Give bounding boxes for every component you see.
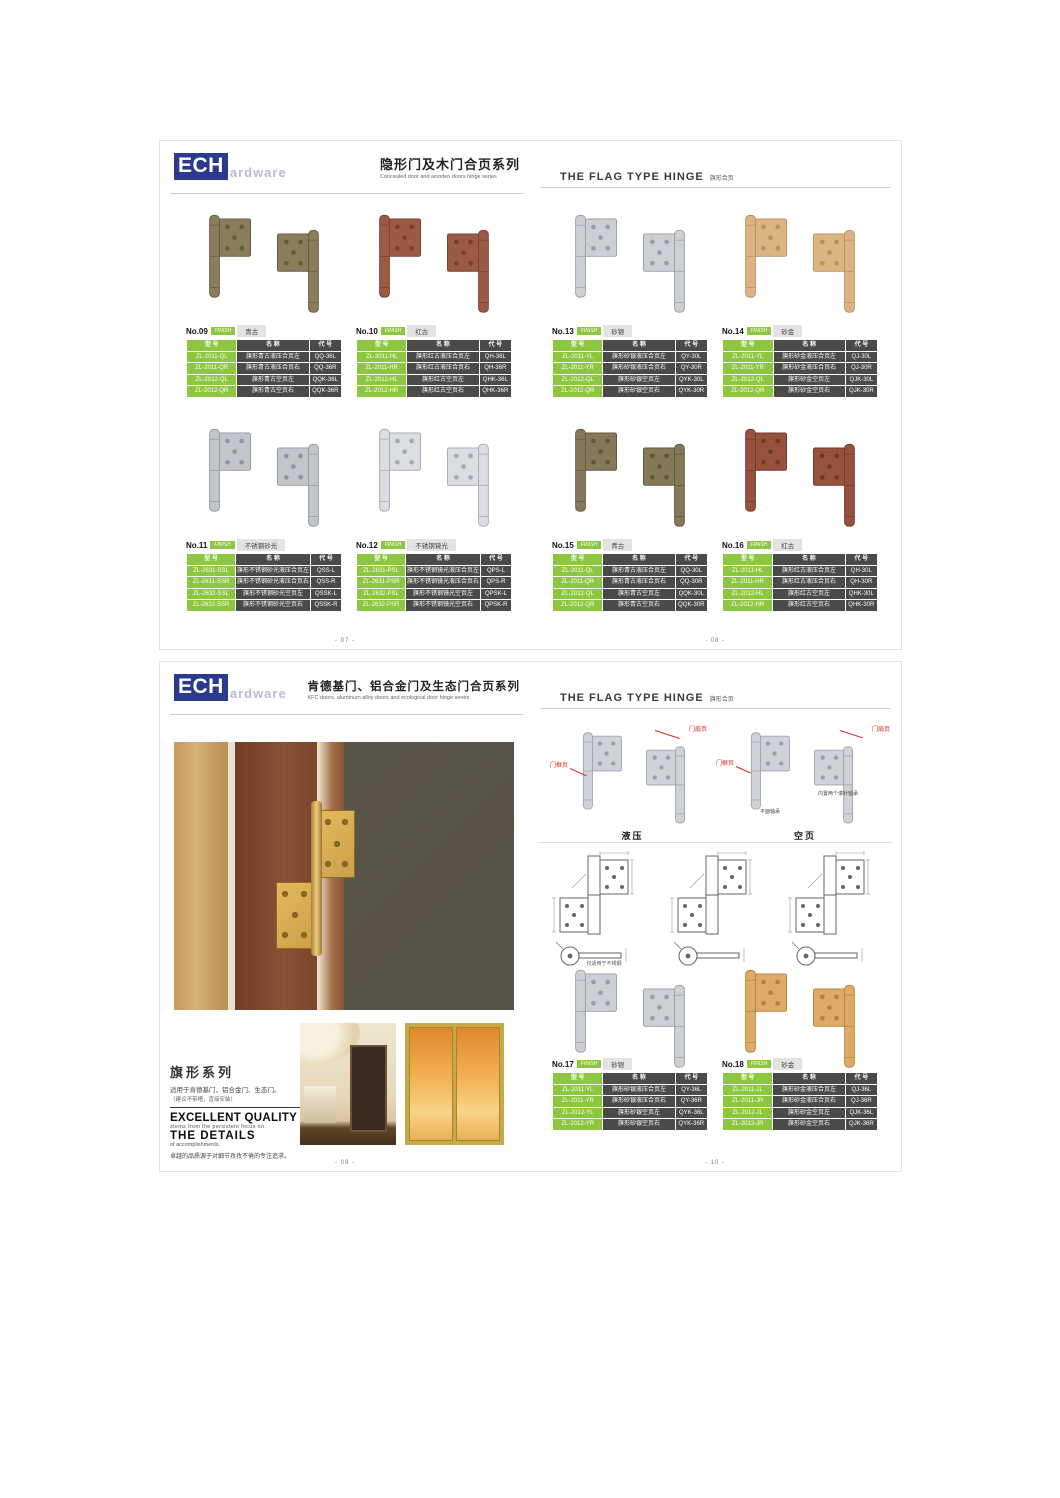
product-number: No.18 (722, 1060, 744, 1069)
code-cell: QQK-36L (310, 375, 341, 386)
spec-row: ZL-2011-HR旗形红古液压合页右QH-36R (357, 363, 511, 374)
model-cell: ZL-2012-JL (723, 1108, 772, 1119)
photo-door-edge (235, 742, 317, 1010)
hydraulic-caption: 液压 (550, 829, 715, 842)
hollow-hinge-image (746, 732, 858, 833)
header-divider (540, 708, 890, 709)
spec-row: ZL-2011-YL旗形砂银液压合页左QY-30L (553, 352, 707, 363)
spec-col-header: 名 称 (603, 1073, 674, 1084)
spec-col-header: 代 号 (846, 554, 877, 565)
spec-row: ZL-2011-HR旗形红古液压合页右QH-30R (723, 577, 877, 588)
spec-col-header: 名 称 (406, 554, 480, 565)
hinge-structure-diagrams: 门扇页 门框页 液压 门扇页 门框页 平面轴承 内置两个滚针轴承 (536, 724, 894, 842)
code-cell: QYK-30L (676, 375, 707, 386)
spec-row: ZL-2632-SSL旗形不锈钢砂光空页左QSSK-L (187, 589, 341, 600)
spec-row: ZL-2012-HL旗形红古空页左QHK-30L (723, 589, 877, 600)
name-cell: 旗形砂金液压合页左 (773, 1085, 844, 1096)
details-subtitle: of accomplishments. (170, 1142, 308, 1148)
spec-col-header: 名 称 (603, 340, 674, 351)
model-cell: ZL-2012-YL (553, 1108, 602, 1119)
page-title-en: Concealed door and wooden doors hinge se… (380, 174, 520, 180)
product-number: No.09 (186, 327, 208, 336)
spec-col-header: 名 称 (237, 340, 308, 351)
spec-table-header-row: 型 号名 称代 号 (553, 1073, 707, 1084)
page-09: ECH ardware 肯德基门、铝合金门及生态门合页系列 KFC doors,… (160, 662, 530, 1171)
spec-col-header: 代 号 (846, 340, 877, 351)
header-divider (170, 714, 524, 715)
spec-col-header: 型 号 (723, 1073, 772, 1084)
hinge-product-photo (356, 421, 512, 539)
product-row: No.17 FINISH 砂银 型 号名 称代 号 ZL-2011-YL旗形砂银… (552, 984, 878, 1131)
finish-badge: FINISH (747, 541, 771, 549)
spec-row: ZL-2011-HL旗形红古液压合页左QH-36L (357, 352, 511, 363)
spec-row: ZL-2011-QR旗形青古液压合页右QQ-30R (553, 577, 707, 588)
code-cell: QHK-36R (480, 386, 511, 397)
spec-table: 型 号名 称代 号 ZL-2631-PSL旗形不锈钢镜光液压合页左QPS-LZL… (356, 553, 512, 612)
photo-wood-strip (174, 742, 228, 1010)
model-cell: ZL-2011-JL (723, 1085, 772, 1096)
name-cell: 旗形青古液压合页左 (237, 352, 308, 363)
name-cell: 旗形红古空页右 (407, 386, 478, 397)
page-07: ECH ardware 隐形门及木门合页系列 Concealed door an… (160, 141, 530, 649)
model-cell: ZL-2012-QL (553, 589, 602, 600)
spec-col-header: 名 称 (603, 554, 674, 565)
technical-drawing (778, 850, 882, 981)
spec-row: ZL-2012-QR旗形砂银空页右QYK-30R (553, 386, 707, 397)
hinge-product-photo (722, 421, 878, 539)
spec-col-header: 名 称 (407, 340, 478, 351)
finish-badge: FINISH (577, 541, 601, 549)
product-row: No.13 FINISH 砂银 型 号名 称代 号 ZL-2011-YL旗形砂银… (552, 207, 878, 398)
name-cell: 旗形不锈钢砂光液压合页左 (236, 566, 310, 577)
spec-table: 型 号名 称代 号 ZL-2011-QL旗形青古液压合页左QQ-36LZL-20… (186, 339, 342, 398)
product-number: No.10 (356, 327, 378, 336)
name-cell: 旗形砂金空页左 (773, 1108, 844, 1119)
name-cell: 旗形砂金空页右 (774, 386, 845, 397)
door-leaf-label: 门扇页 (689, 724, 707, 733)
model-cell: ZL-2011-YR (553, 1096, 602, 1107)
spec-table: 型 号名 称代 号 ZL-2631-SSL旗形不锈钢砂光液压合页左QSS-LZL… (186, 553, 342, 612)
code-cell: QY-36L (676, 1085, 707, 1096)
spec-col-header: 代 号 (846, 1073, 877, 1084)
model-cell: ZL-2012-HR (357, 386, 406, 397)
product-label: No.13 FINISH 砂银 (552, 325, 708, 337)
finish-name: 砂银 (603, 325, 632, 337)
model-cell: ZL-2012-HL (357, 375, 406, 386)
name-cell: 旗形青古空页右 (237, 386, 308, 397)
spec-row: ZL-2012-QL旗形青古空页左QQK-30L (553, 589, 707, 600)
product-row: No.15 FINISH 青古 型 号名 称代 号 ZL-2011-QL旗形青古… (552, 421, 878, 612)
series-title: 旗形系列 (170, 1062, 308, 1081)
code-cell: QSSK-L (311, 589, 341, 600)
spec-row: ZL-2012-HR旗形红古空页右QHK-30R (723, 600, 877, 611)
finish-badge: FINISH (211, 327, 235, 335)
name-cell: 旗形红古空页左 (773, 589, 844, 600)
model-cell: ZL-2012-QL (187, 375, 236, 386)
name-cell: 旗形红古液压合页右 (407, 363, 478, 374)
spec-col-header: 代 号 (311, 554, 341, 565)
spec-row: ZL-2011-YR旗形砂金液压合页右QJ-30R (723, 363, 877, 374)
product-number: No.17 (552, 1060, 574, 1069)
product-card: No.17 FINISH 砂银 型 号名 称代 号 ZL-2011-YL旗形砂银… (552, 984, 708, 1131)
spec-table-header-row: 型 号名 称代 号 (723, 1073, 877, 1084)
code-cell: QH-30R (846, 577, 877, 588)
page-10: THE FLAG TYPE HINGE 旗形合页 门扇页 门框页 液压 (530, 662, 900, 1171)
name-cell: 旗形红古空页右 (773, 600, 844, 611)
spec-col-header: 代 号 (481, 554, 511, 565)
product-card: No.09 FINISH 青古 型 号名 称代 号 ZL-2011-QL旗形青古… (186, 207, 342, 398)
spec-row: ZL-2011-YL旗形砂银液压合页左QY-36L (553, 1085, 707, 1096)
spec-table-header-row: 型 号名 称代 号 (357, 340, 511, 351)
product-number: No.15 (552, 541, 574, 550)
drawing-note: 仅适用于不锈钢 (552, 960, 656, 967)
plane-bearing-label: 平面轴承 (760, 808, 780, 815)
flag-hinge-title: THE FLAG TYPE HINGE (560, 171, 704, 183)
finish-name: 砂金 (773, 325, 802, 337)
name-cell: 旗形砂金空页左 (774, 375, 845, 386)
model-cell: ZL-2011-QR (187, 363, 236, 374)
code-cell: QSS-L (311, 566, 341, 577)
code-cell: QH-36L (480, 352, 511, 363)
spec-col-header: 代 号 (676, 554, 707, 565)
header-divider (170, 193, 524, 194)
hinge-product-photo (722, 984, 878, 1058)
code-cell: QH-36R (480, 363, 511, 374)
hinge-product-photo (186, 207, 342, 325)
product-card: No.15 FINISH 青古 型 号名 称代 号 ZL-2011-QL旗形青古… (552, 421, 708, 612)
spec-row: ZL-2632-PSL旗形不锈钢镜光空页左QPSK-L (357, 589, 511, 600)
finish-badge: FINISH (747, 1060, 771, 1068)
flag-hinge-title: THE FLAG TYPE HINGE (560, 692, 704, 704)
code-cell: QQ-30L (676, 566, 707, 577)
spec-row: ZL-2011-YL旗形砂金液压合页左QJ-30L (723, 352, 877, 363)
name-cell: 旗形砂金液压合页右 (774, 363, 845, 374)
product-label: No.14 FINISH 砂金 (722, 325, 878, 337)
spec-row: ZL-2012-QR旗形砂金空页右QJK-30R (723, 386, 877, 397)
name-cell: 旗形青古液压合页右 (603, 577, 674, 588)
product-number: No.16 (722, 541, 744, 550)
model-cell: ZL-2011-HR (357, 363, 406, 374)
details-title: THE DETAILS (170, 1130, 308, 1142)
spec-col-header: 名 称 (773, 1073, 844, 1084)
door-leaf-label: 门扇页 (872, 724, 890, 733)
name-cell: 旗形砂银空页左 (603, 375, 674, 386)
product-label: No.15 FINISH 青古 (552, 539, 708, 551)
quality-title: EXCELLENT QUALITY (170, 1112, 308, 1124)
model-cell: ZL-2012-JR (723, 1119, 772, 1130)
dark-door (350, 1045, 387, 1132)
model-cell: ZL-2631-SSL (187, 566, 235, 577)
flag-hinge-title-cn: 旗形合页 (710, 173, 734, 182)
model-cell: ZL-2011-YR (553, 363, 602, 374)
code-cell: QY-36R (676, 1096, 707, 1107)
name-cell: 旗形砂银空页右 (603, 386, 674, 397)
name-cell: 旗形红古液压合页右 (773, 577, 844, 588)
finish-badge: FINISH (381, 327, 405, 335)
spec-row: ZL-2012-QL旗形砂银空页左QYK-30L (553, 375, 707, 386)
spec-col-header: 代 号 (310, 340, 341, 351)
page-10-header: THE FLAG TYPE HINGE 旗形合页 (560, 692, 734, 704)
code-cell: QQK-30L (676, 589, 707, 600)
hinge-product-photo (186, 421, 342, 539)
code-cell: QJK-30L (846, 375, 877, 386)
name-cell: 旗形不锈钢镜光液压合页左 (406, 566, 480, 577)
model-cell: ZL-2012-QL (553, 375, 602, 386)
finish-badge: FINISH (210, 541, 234, 549)
spec-col-header: 型 号 (553, 1073, 602, 1084)
name-cell: 旗形砂银液压合页左 (603, 1085, 674, 1096)
model-cell: ZL-2632-PSR (357, 600, 405, 611)
product-card: No.16 FINISH 红古 型 号名 称代 号 ZL-2011-HL旗形红古… (722, 421, 878, 612)
hollow-caption: 空页 (716, 829, 894, 842)
finish-badge: FINISH (577, 327, 601, 335)
code-cell: QJK-30R (846, 386, 877, 397)
hydraulic-hinge-diagram: 门扇页 门框页 液压 (550, 724, 715, 842)
glass-pane (409, 1027, 453, 1141)
product-label: No.16 FINISH 红古 (722, 539, 878, 551)
spec-col-header: 代 号 (480, 340, 511, 351)
code-cell: QHK-30L (846, 589, 877, 600)
page-number: - 07 - (160, 638, 530, 644)
header-divider (540, 187, 890, 188)
model-cell: ZL-2011-QL (187, 352, 236, 363)
product-number: No.11 (186, 541, 207, 550)
model-cell: ZL-2011-HL (357, 352, 406, 363)
hinge-product-photo (552, 421, 708, 539)
spec-table-header-row: 型 号名 称代 号 (723, 554, 877, 565)
ech-logo-box: ECH (174, 153, 228, 180)
code-cell: QJ-30R (846, 363, 877, 374)
technical-drawing (660, 850, 764, 981)
code-cell: QPS-R (481, 577, 511, 588)
furniture-detail (304, 1086, 337, 1123)
spec-row: ZL-2012-HL旗形红古空页左QHK-36L (357, 375, 511, 386)
code-cell: QSS-R (311, 577, 341, 588)
spec-table: 型 号名 称代 号 ZL-2011-HL旗形红古液压合页左QH-36LZL-20… (356, 339, 512, 398)
product-card: No.13 FINISH 砂银 型 号名 称代 号 ZL-2011-YL旗形砂银… (552, 207, 708, 398)
ech-logo-suffix: ardware (230, 686, 287, 701)
name-cell: 旗形砂金空页右 (773, 1119, 844, 1130)
spec-table-header-row: 型 号名 称代 号 (553, 340, 707, 351)
spec-col-header: 型 号 (357, 340, 406, 351)
name-cell: 旗形砂银空页左 (603, 1108, 674, 1119)
finish-name: 红古 (407, 325, 436, 337)
name-cell: 旗形青古液压合页右 (237, 363, 308, 374)
spec-row: ZL-2631-SSL旗形不锈钢砂光液压合页左QSS-L (187, 566, 341, 577)
series-line1: 适用于肯德基门、铝合金门、生态门。 (170, 1084, 308, 1094)
code-cell: QQ-30R (676, 577, 707, 588)
spec-col-header: 型 号 (187, 340, 236, 351)
product-card: No.18 FINISH 砂金 型 号名 称代 号 ZL-2011-JL旗形砂金… (722, 984, 878, 1131)
glass-door-photo (405, 1023, 504, 1145)
glass-pane (456, 1027, 500, 1141)
spec-table: 型 号名 称代 号 ZL-2011-YL旗形砂银液压合页左QY-30LZL-20… (552, 339, 708, 398)
flag-hinge-title-cn: 旗形合页 (710, 694, 734, 703)
finish-badge: FINISH (381, 541, 405, 549)
spec-row: ZL-2632-SSR旗形不锈钢砂光空页右QSSK-R (187, 600, 341, 611)
model-cell: ZL-2012-QR (723, 386, 773, 397)
model-cell: ZL-2011-YL (553, 1085, 602, 1096)
installed-hinge-photo (174, 742, 514, 1010)
spec-col-header: 型 号 (357, 554, 405, 565)
code-cell: QQK-36R (310, 386, 341, 397)
product-row: No.11 FINISH 不锈钢砂光 型 号名 称代 号 ZL-2631-SSL… (186, 421, 512, 612)
spec-col-header: 名 称 (774, 340, 845, 351)
model-cell: ZL-2632-SSR (187, 600, 235, 611)
product-label: No.10 FINISH 红古 (356, 325, 512, 337)
spec-row: ZL-2011-YR旗形砂银液压合页右QY-30R (553, 363, 707, 374)
code-cell: QYK-30R (676, 386, 707, 397)
spec-table: 型 号名 称代 号 ZL-2011-YL旗形砂金液压合页左QJ-30LZL-20… (722, 339, 878, 398)
spec-row: ZL-2012-QR旗形青古空页右QQK-36R (187, 386, 341, 397)
hinge-product-photo (552, 984, 708, 1058)
product-label: No.09 FINISH 青古 (186, 325, 342, 337)
product-label: No.12 FINISH 不锈钢镜光 (356, 539, 512, 551)
code-cell: QY-30L (676, 352, 707, 363)
section-divider (538, 842, 892, 843)
page-number: - 09 - (160, 1160, 530, 1166)
needle-bearing-label: 内置两个滚针轴承 (818, 790, 858, 797)
name-cell: 旗形青古空页左 (237, 375, 308, 386)
model-cell: ZL-2012-HR (723, 600, 772, 611)
product-card: No.10 FINISH 红古 型 号名 称代 号 ZL-2011-HL旗形红古… (356, 207, 512, 398)
spec-table-header-row: 型 号名 称代 号 (723, 340, 877, 351)
hollow-hinge-diagram: 门扇页 门框页 平面轴承 内置两个滚针轴承 空页 (716, 724, 894, 842)
frame-leaf-label: 门框页 (550, 760, 568, 769)
code-cell: QQ-36R (310, 363, 341, 374)
catalog-spread-09-10: ECH ardware 肯德基门、铝合金门及生态门合页系列 KFC doors,… (159, 661, 902, 1172)
spec-row: ZL-2012-QL旗形砂金空页左QJK-30L (723, 375, 877, 386)
name-cell: 旗形不锈钢砂光液压合页右 (236, 577, 310, 588)
spec-col-header: 代 号 (676, 1073, 707, 1084)
finish-name: 青古 (603, 539, 632, 551)
name-cell: 旗形青古空页右 (603, 600, 674, 611)
hinge-product-photo (722, 207, 878, 325)
spec-row: ZL-2012-YR旗形砂银空页右QYK-36R (553, 1119, 707, 1130)
finish-badge: FINISH (577, 1060, 601, 1068)
product-card: No.12 FINISH 不锈钢镜光 型 号名 称代 号 ZL-2631-PSL… (356, 421, 512, 612)
model-cell: ZL-2012-QR (187, 386, 236, 397)
spec-col-header: 型 号 (723, 340, 773, 351)
code-cell: QYK-36R (676, 1119, 707, 1130)
hinge-product-photo (552, 207, 708, 325)
code-cell: QJ-30L (846, 352, 877, 363)
spec-row: ZL-2631-PSR旗形不锈钢镜光液压合页右QPS-R (357, 577, 511, 588)
name-cell: 旗形砂银液压合页右 (603, 1096, 674, 1107)
page-07-header: ECH ardware 隐形门及木门合页系列 Concealed door an… (174, 153, 520, 180)
photo-gap (228, 742, 235, 1010)
spec-table-header-row: 型 号名 称代 号 (187, 340, 341, 351)
code-cell: QPSK-L (481, 589, 511, 600)
name-cell: 旗形红古液压合页左 (773, 566, 844, 577)
code-cell: QQ-36L (310, 352, 341, 363)
name-cell: 旗形红古液压合页左 (407, 352, 478, 363)
gold-hinge-in-photo (283, 801, 348, 956)
model-cell: ZL-2631-SSR (187, 577, 235, 588)
code-cell: QJK-36R (846, 1119, 877, 1130)
code-cell: QYK-36L (676, 1108, 707, 1119)
finish-name: 红古 (773, 539, 802, 551)
product-row: No.09 FINISH 青古 型 号名 称代 号 ZL-2011-QL旗形青古… (186, 207, 512, 398)
catalog-spread-07-08: ECH ardware 隐形门及木门合页系列 Concealed door an… (159, 140, 902, 650)
ech-logo: ECH ardware (174, 674, 287, 701)
model-cell: ZL-2012-QR (553, 386, 602, 397)
product-card: No.11 FINISH 不锈钢砂光 型 号名 称代 号 ZL-2631-SSL… (186, 421, 342, 612)
finish-name: 不锈钢镜光 (407, 539, 456, 551)
code-cell: QHK-30R (846, 600, 877, 611)
page-title-cn: 肯德基门、铝合金门及生态门合页系列 (308, 678, 521, 694)
name-cell: 旗形砂金液压合页右 (773, 1096, 844, 1107)
series-description: 旗形系列 适用于肯德基门、铝合金门、生态门。 （建议不带槽，直接安装） EXCE… (170, 1062, 308, 1160)
spec-table-header-row: 型 号名 称代 号 (357, 554, 511, 565)
spec-row: ZL-2632-PSR旗形不锈钢镜光空页右QPSK-R (357, 600, 511, 611)
model-cell: ZL-2011-YR (723, 363, 773, 374)
model-cell: ZL-2631-PSL (357, 566, 405, 577)
page-08: THE FLAG TYPE HINGE 旗形合页 No.13 FINISH 砂银… (530, 141, 900, 649)
spec-row: ZL-2012-QR旗形青古空页右QQK-30R (553, 600, 707, 611)
spec-table: 型 号名 称代 号 ZL-2011-JL旗形砂金液压合页左QJ-36LZL-20… (722, 1072, 878, 1131)
model-cell: ZL-2012-QR (553, 600, 602, 611)
photo-dark-wall (344, 742, 514, 1010)
application-photos (300, 1023, 504, 1145)
spec-row: ZL-2012-HR旗形红古空页右QHK-36R (357, 386, 511, 397)
ech-logo-suffix: ardware (230, 165, 287, 180)
model-cell: ZL-2011-QL (553, 566, 602, 577)
finish-name: 砂金 (773, 1058, 802, 1070)
spec-table-header-row: 型 号名 称代 号 (553, 554, 707, 565)
spec-row: ZL-2012-QL旗形青古空页左QQK-36L (187, 375, 341, 386)
spec-col-header: 名 称 (236, 554, 310, 565)
spec-col-header: 型 号 (553, 554, 602, 565)
product-number: No.14 (722, 327, 744, 336)
model-cell: ZL-2011-HR (723, 577, 772, 588)
finish-badge: FINISH (747, 327, 771, 335)
product-label: No.11 FINISH 不锈钢砂光 (186, 539, 342, 551)
spec-table: 型 号名 称代 号 ZL-2011-QL旗形青古液压合页左QQ-30LZL-20… (552, 553, 708, 612)
model-cell: ZL-2011-QR (553, 577, 602, 588)
code-cell: QPSK-R (481, 600, 511, 611)
name-cell: 旗形不锈钢镜光液压合页右 (406, 577, 480, 588)
spec-table: 型 号名 称代 号 ZL-2011-HL旗形红古液压合页左QH-30LZL-20… (722, 553, 878, 612)
spec-row: ZL-2011-QL旗形青古液压合页左QQ-36L (187, 352, 341, 363)
name-cell: 旗形红古空页左 (407, 375, 478, 386)
model-cell: ZL-2011-HL (723, 566, 772, 577)
model-cell: ZL-2632-SSL (187, 589, 235, 600)
model-cell: ZL-2011-JR (723, 1096, 772, 1107)
name-cell: 旗形青古空页左 (603, 589, 674, 600)
name-cell: 旗形不锈钢镜光空页右 (406, 600, 480, 611)
code-cell: QY-30R (676, 363, 707, 374)
finish-name: 砂银 (603, 1058, 632, 1070)
name-cell: 旗形砂银液压合页左 (603, 352, 674, 363)
page-number: - 08 - (530, 638, 900, 644)
ech-logo: ECH ardware (174, 153, 287, 180)
model-cell: ZL-2632-PSL (357, 589, 405, 600)
code-cell: QHK-36L (480, 375, 511, 386)
product-number: No.12 (356, 541, 378, 550)
code-cell: QQK-30R (676, 600, 707, 611)
spec-row: ZL-2012-JR旗形砂金空页右QJK-36R (723, 1119, 877, 1130)
model-cell: ZL-2631-PSR (357, 577, 405, 588)
name-cell: 旗形砂银液压合页右 (603, 363, 674, 374)
spec-col-header: 型 号 (723, 554, 772, 565)
spec-table: 型 号名 称代 号 ZL-2011-YL旗形砂银液压合页左QY-36LZL-20… (552, 1072, 708, 1131)
spec-col-header: 型 号 (553, 340, 602, 351)
model-cell: ZL-2011-YL (553, 352, 602, 363)
code-cell: QJ-36L (846, 1085, 877, 1096)
spec-row: ZL-2011-YR旗形砂银液压合页右QY-36R (553, 1096, 707, 1107)
frame-leaf-label: 门框页 (716, 758, 734, 767)
